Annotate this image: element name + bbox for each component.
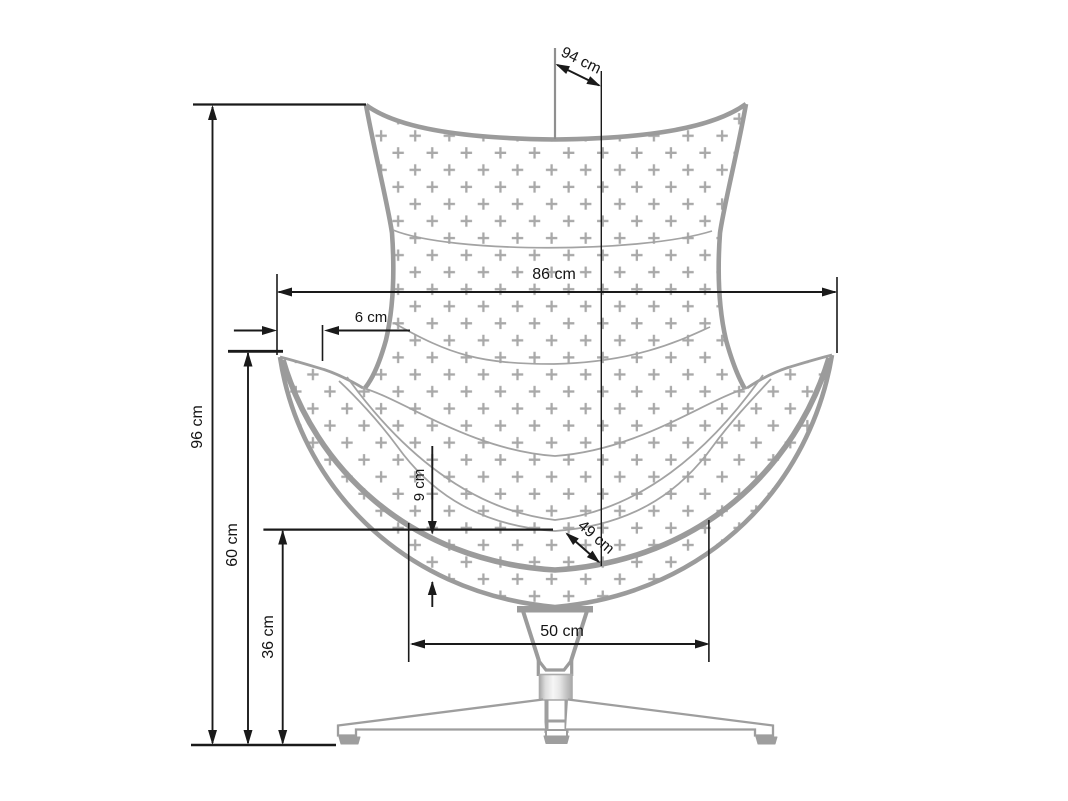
svg-text:50 cm: 50 cm [540, 623, 584, 640]
svg-text:86 cm: 86 cm [532, 266, 576, 283]
svg-text:36 cm: 36 cm [260, 615, 277, 659]
svg-text:60 cm: 60 cm [224, 523, 241, 567]
svg-text:9 cm: 9 cm [411, 469, 428, 502]
svg-text:6 cm: 6 cm [355, 309, 388, 326]
svg-text:96 cm: 96 cm [189, 405, 206, 449]
